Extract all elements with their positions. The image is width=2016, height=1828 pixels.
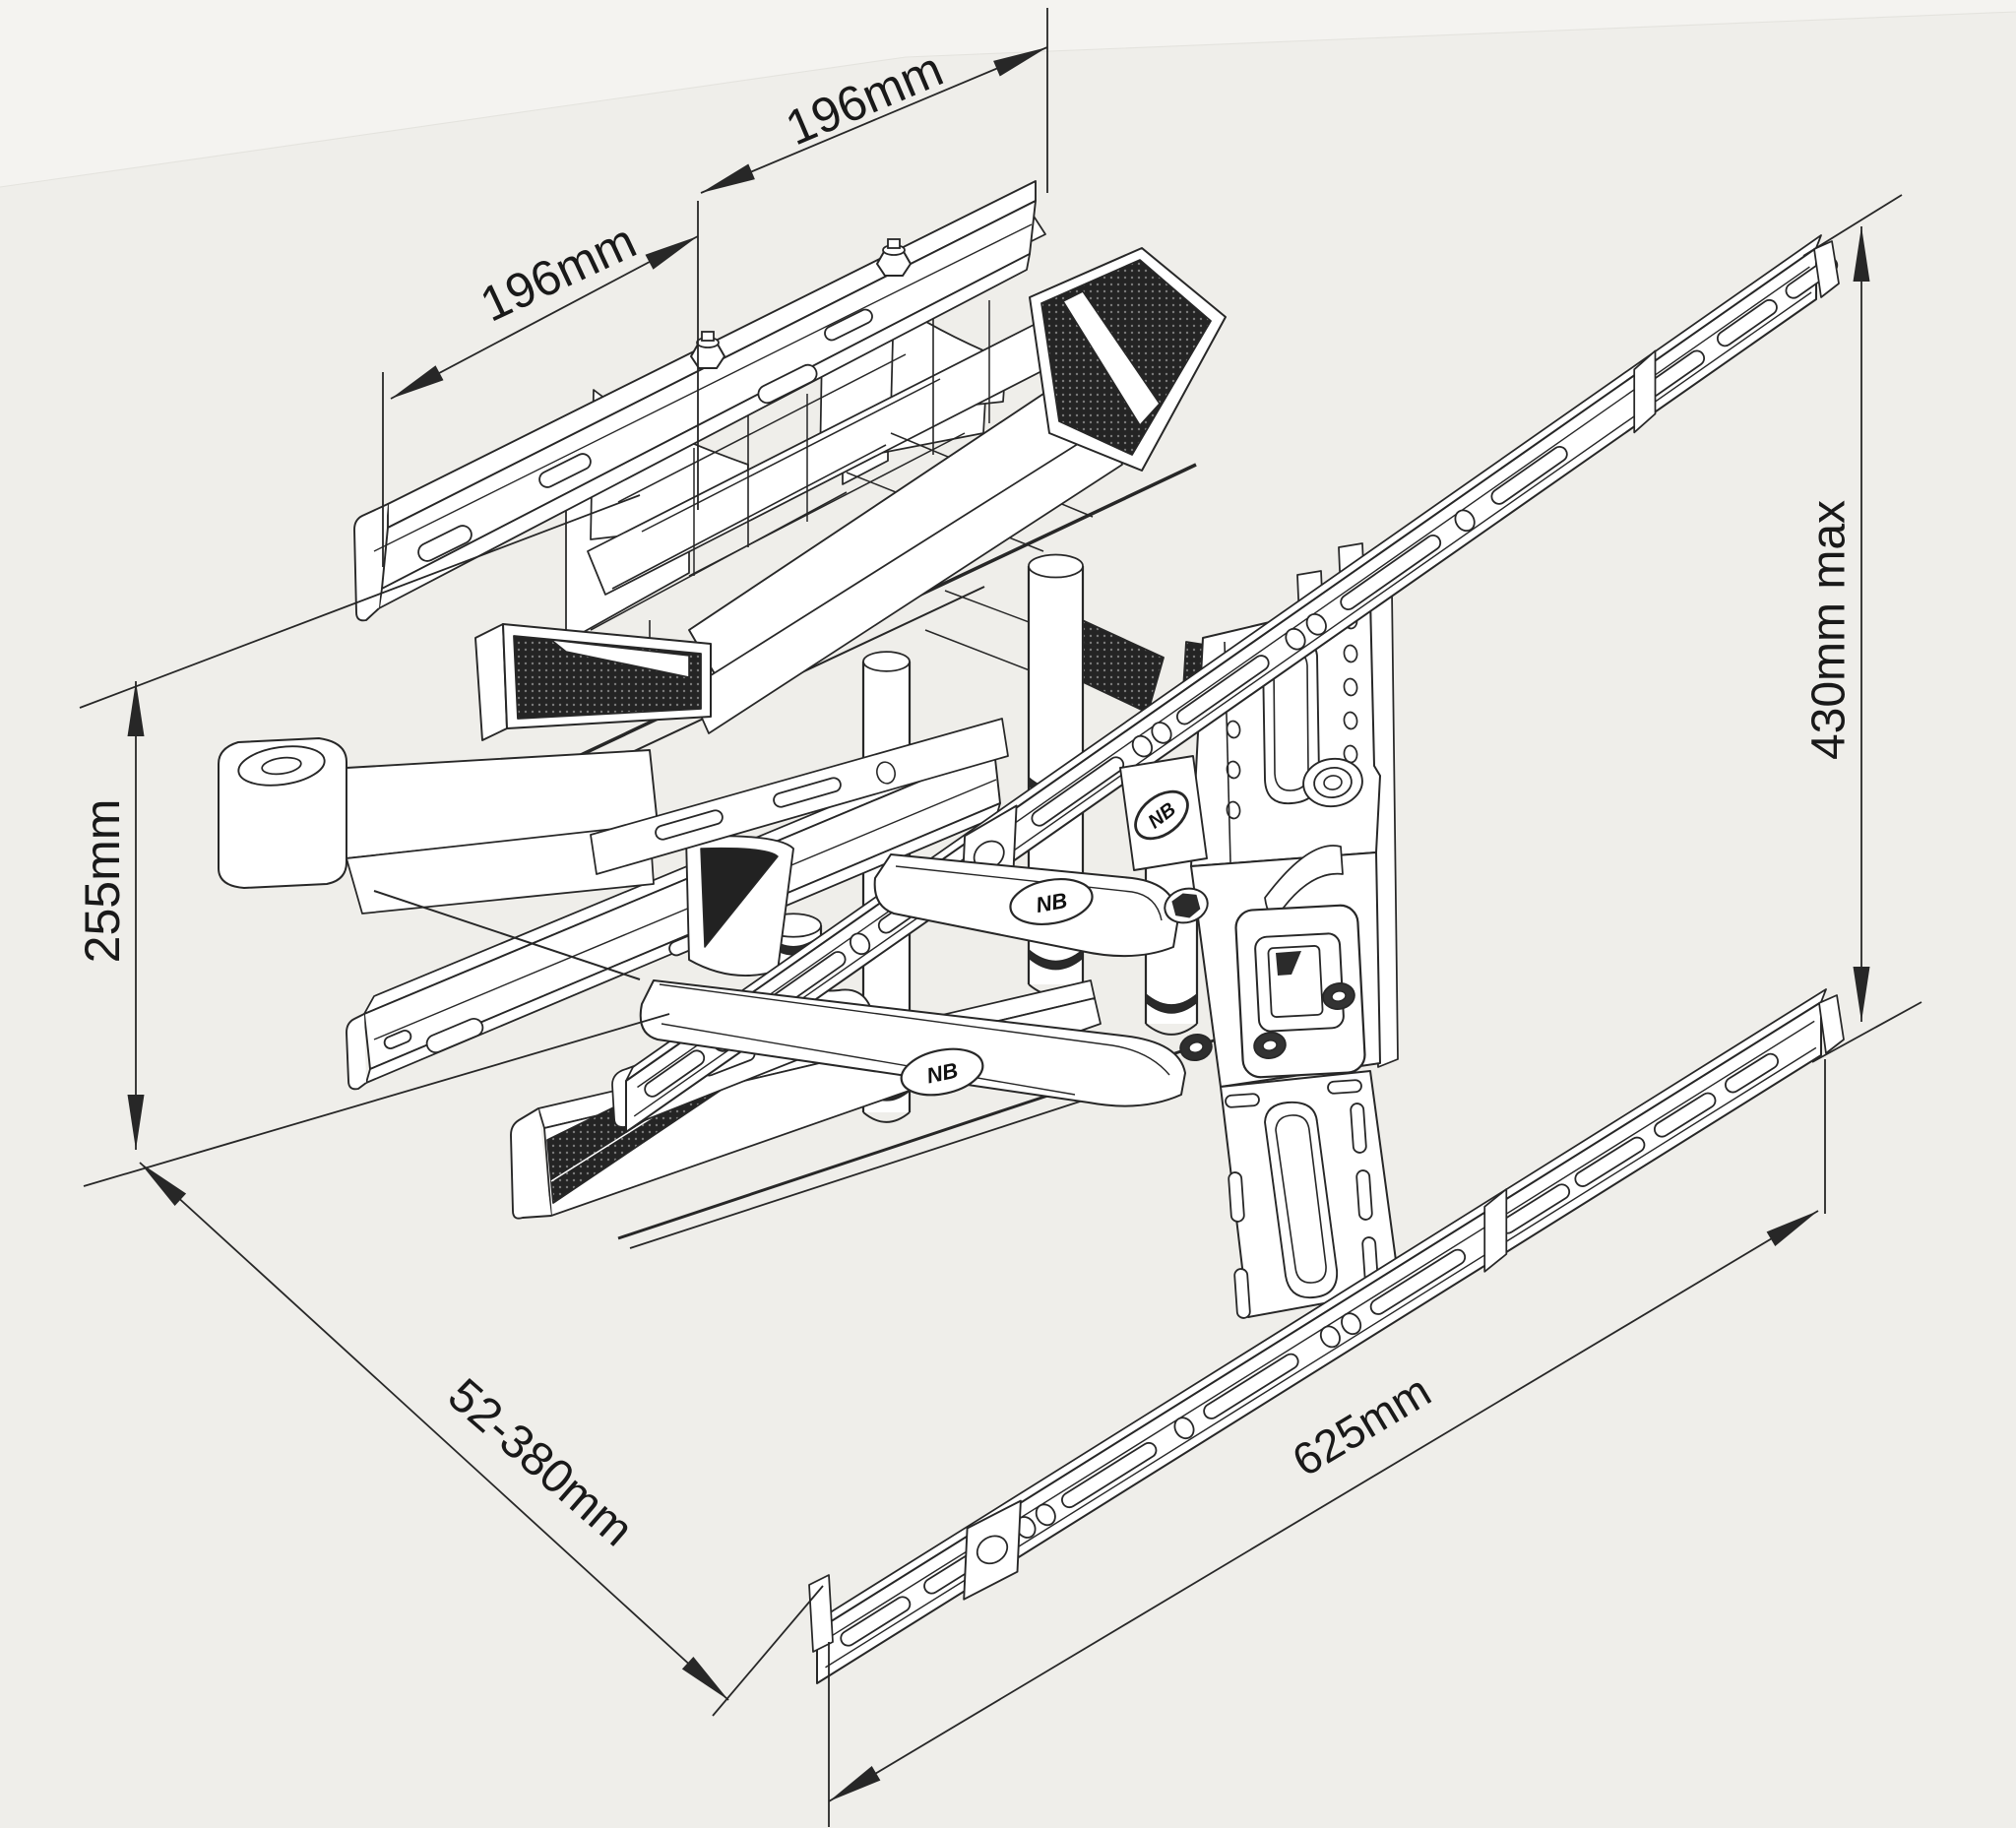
svg-text:430mm max: 430mm max	[1803, 500, 1856, 760]
svg-text:255mm: 255mm	[75, 799, 130, 964]
